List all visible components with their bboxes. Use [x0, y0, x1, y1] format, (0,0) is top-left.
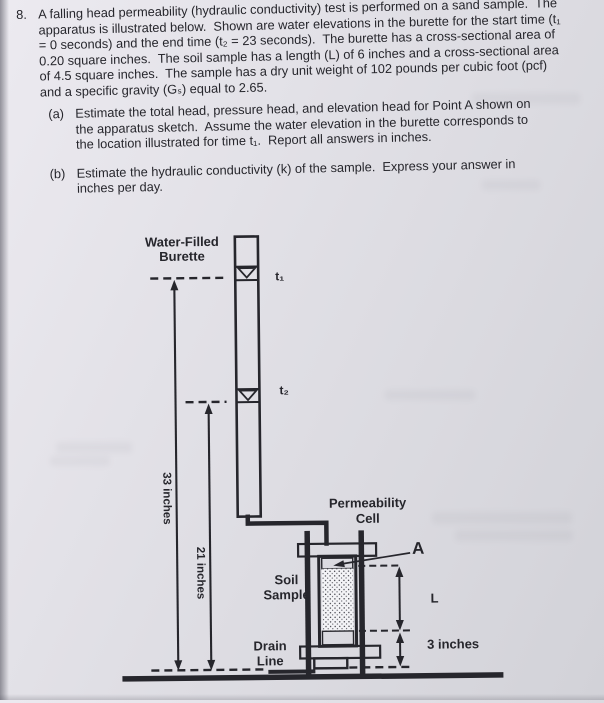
- worksheet-page: 8. A falling head permeability (hydrauli…: [0, 0, 604, 700]
- point-a-label: A: [412, 539, 424, 558]
- sample-bottom-dashed-line: [359, 630, 412, 631]
- dimension-33-inches-label: 33 inches: [160, 472, 173, 525]
- porous-stone-bottom: [322, 631, 353, 645]
- cell-label-line2: Cell: [356, 511, 380, 526]
- soil-label-line1: Soil: [274, 572, 298, 587]
- cell-label-line1: Permeability: [329, 495, 407, 511]
- water-level-t2-symbol: [236, 389, 259, 402]
- dimension-21-inches: 21 inches: [193, 403, 216, 670]
- cell-base-stem: [314, 658, 347, 668]
- datum-dashed-line-right: [349, 667, 410, 668]
- tie-rod-right: [358, 530, 365, 676]
- inlet-tube: [248, 514, 327, 547]
- dimension-L-label: L: [431, 591, 439, 606]
- burette-body: [235, 236, 261, 516]
- burette-label-line2: Burette: [159, 249, 205, 264]
- apparatus-diagram: t₁ t₂ 33 inches 21 inches Water-Filled B…: [0, 0, 604, 703]
- water-level-t1-symbol: [235, 266, 258, 280]
- ground-line: [122, 675, 503, 679]
- drain-label-line2: Line: [257, 653, 284, 668]
- tie-rod-left: [304, 531, 311, 677]
- t1-level-dashed-line: [150, 278, 225, 279]
- dimension-21-inches-label: 21 inches: [194, 547, 207, 600]
- dimension-33-inches: 33 inches: [158, 280, 182, 671]
- dimension-3-inches-label: 3 inches: [427, 636, 479, 652]
- datum-dashed-line-left: [151, 669, 267, 670]
- soil-sample-fill: [322, 568, 354, 631]
- burette-label-line1: Water-Filled: [145, 234, 219, 250]
- time-t1-label: t₁: [275, 269, 284, 283]
- dimension-L: L: [395, 566, 439, 630]
- cell-bottom-cap: [300, 646, 380, 659]
- time-t2-label: t₂: [279, 383, 288, 397]
- drain-label-line1: Drain: [253, 638, 286, 653]
- soil-label-line2: Sample: [263, 587, 309, 602]
- dimension-3-inches: 3 inches: [396, 632, 479, 667]
